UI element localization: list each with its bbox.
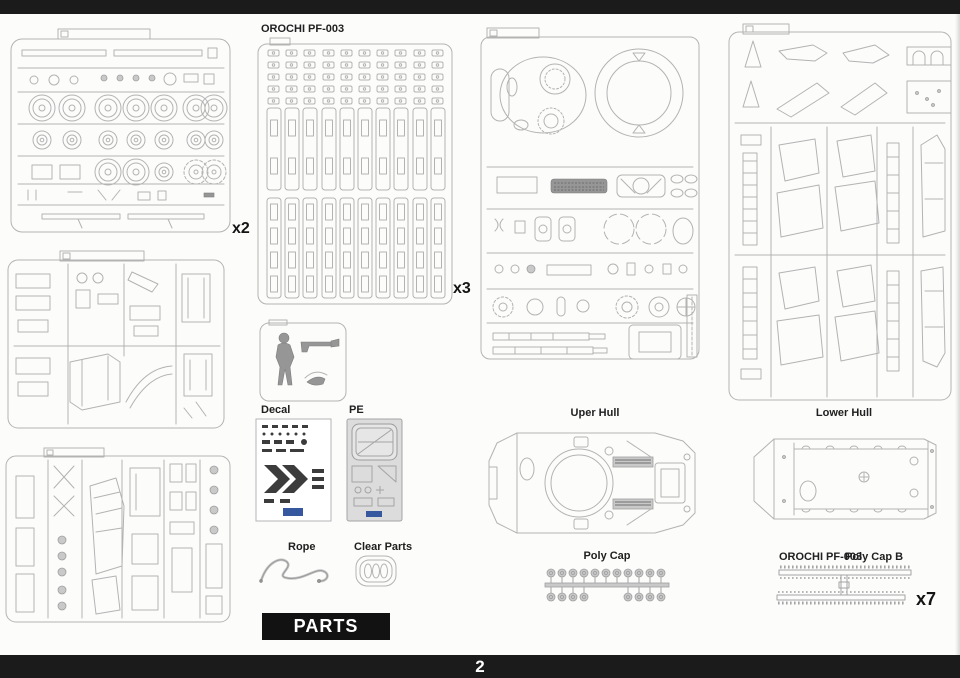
page-number: 2: [475, 657, 484, 677]
lower-hull-label: Lower Hull: [746, 407, 942, 419]
scan-edge-shadow: [955, 14, 960, 655]
clear-parts-drawing: [355, 555, 397, 587]
poly-cap-sprue-drawing: [543, 566, 671, 604]
pe-fret-drawing: [346, 418, 403, 522]
top-black-bar: [0, 0, 960, 14]
sprue-turret-drawing: [479, 27, 701, 365]
clear-parts-label: Clear Parts: [354, 541, 412, 553]
track-links-sprue-drawing: [256, 36, 454, 308]
poly-cap-b-multiplier: x7: [916, 589, 936, 610]
track-sprue-multiplier: x3: [453, 280, 471, 298]
decal-label: Decal: [261, 404, 290, 416]
upper-hull-label: Uper Hull: [495, 407, 695, 419]
parts-banner-label: PARTS: [294, 616, 359, 637]
poly-cap-label: Poly Cap: [543, 550, 671, 562]
lower-hull-drawing: [746, 429, 942, 529]
figure-sprue-drawing: [259, 320, 347, 402]
rope-drawing: [257, 554, 335, 588]
bottom-black-bar: 2: [0, 655, 960, 678]
parts-banner: PARTS: [262, 613, 390, 640]
upper-hull-drawing: [487, 427, 699, 539]
track-sprue-code: OROCHI PF-003: [261, 23, 344, 35]
manual-page: x2: [0, 0, 960, 678]
sprue-b-panels-drawing: [6, 250, 228, 432]
sprue-a-multiplier: x2: [232, 220, 250, 238]
poly-cap-b-drawing: [775, 562, 917, 606]
sprue-d-hull-parts-drawing: [727, 23, 953, 405]
sprue-a-wheels-drawing: [8, 28, 234, 236]
sprue-c-drawing: [4, 448, 234, 626]
decal-sheet-drawing: [256, 419, 331, 521]
pe-label: PE: [349, 404, 364, 416]
rope-label: Rope: [288, 541, 316, 553]
